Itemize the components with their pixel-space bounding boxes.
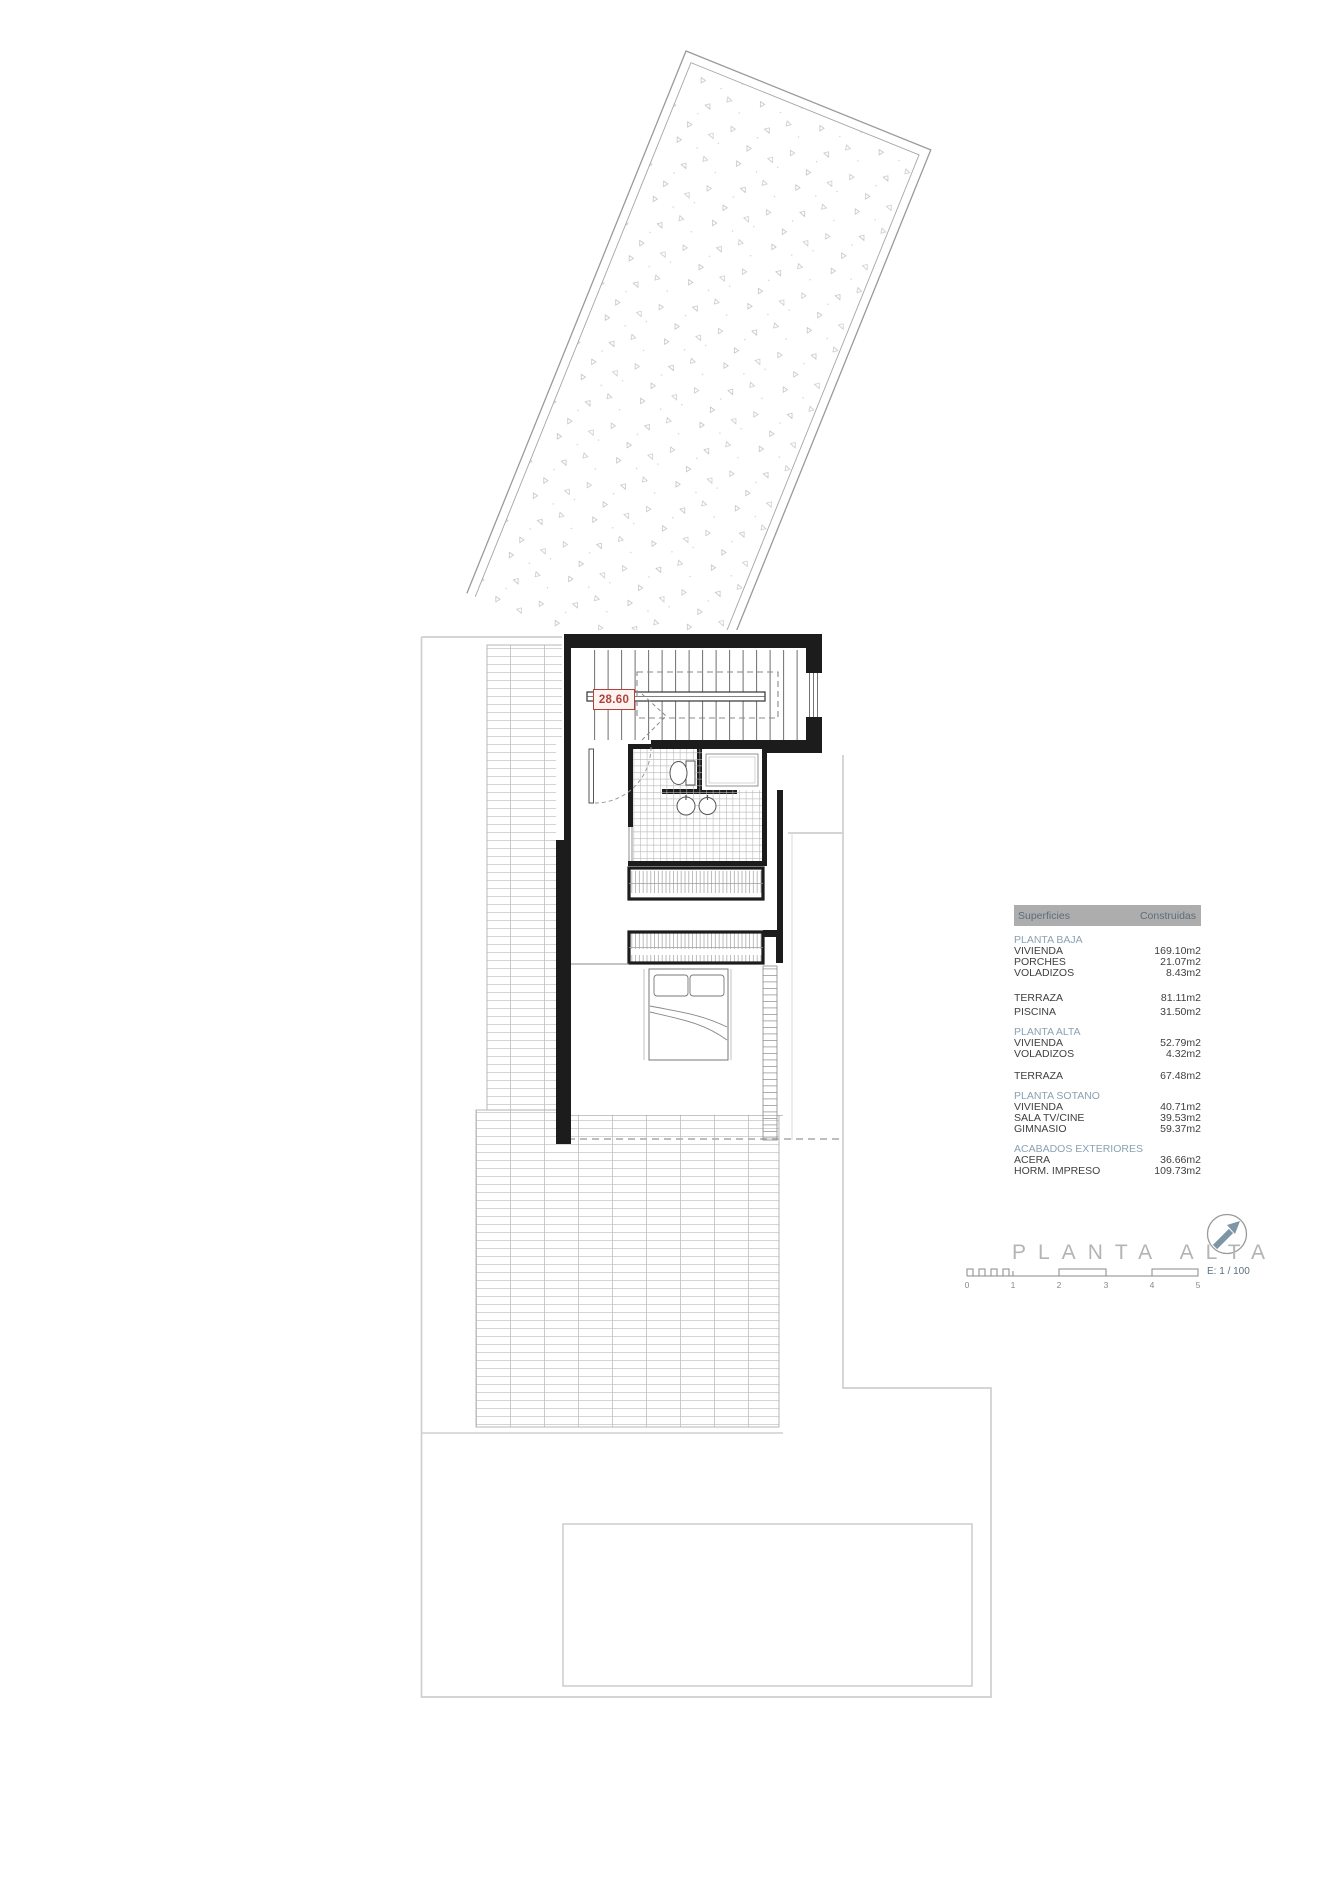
surface-value: 59.37m2 xyxy=(1160,1124,1201,1135)
surface-value: 81.11m2 xyxy=(1161,993,1201,1004)
surfaces-table: Superficies Construidas PLANTA BAJA VIVI… xyxy=(1014,905,1201,1177)
surface-row: TERRAZA81.11m2 xyxy=(1014,993,1201,1004)
surface-label: HORM. IMPRESO xyxy=(1014,1166,1100,1177)
scale-tick-label: 5 xyxy=(1193,1280,1203,1290)
surface-value: 67.48m2 xyxy=(1160,1071,1201,1082)
bathroom xyxy=(633,749,762,861)
scale-tick-label: 2 xyxy=(1054,1280,1064,1290)
sink xyxy=(699,798,716,815)
page-title: PLANTA ALTA xyxy=(1012,1241,1277,1265)
surfaces-col-header: Superficies xyxy=(1018,910,1070,922)
surface-label: VOLADIZOS xyxy=(1014,968,1074,979)
level-badge: 28.60 xyxy=(593,689,635,710)
scale-tick-label: 4 xyxy=(1147,1280,1157,1290)
pool-outline xyxy=(563,1524,972,1686)
surface-label: TERRAZA xyxy=(1014,1071,1063,1082)
floor-plan-sheet: 28.60 Superficies Construidas PLANTA BAJ… xyxy=(0,0,1336,1896)
built-col-header: Construidas xyxy=(1140,910,1196,922)
scale-tick-label: 0 xyxy=(962,1280,972,1290)
surface-row: PISCINA31.50m2 xyxy=(1014,1007,1201,1018)
surface-label: GIMNASIO xyxy=(1014,1124,1067,1135)
surface-row: VOLADIZOS8.43m2 xyxy=(1014,968,1201,979)
scale-ratio-label: E: 1 / 100 xyxy=(1207,1266,1250,1277)
surface-row: HORM. IMPRESO109.73m2 xyxy=(1014,1166,1201,1177)
surface-value: 31.50m2 xyxy=(1160,1007,1201,1018)
surfaces-table-header: Superficies Construidas xyxy=(1014,905,1201,926)
scale-tick-label: 1 xyxy=(1008,1280,1018,1290)
surface-value: 109.73m2 xyxy=(1154,1166,1201,1177)
scale-tick-label: 3 xyxy=(1101,1280,1111,1290)
surface-value: 8.43m2 xyxy=(1166,968,1201,979)
surface-row: VOLADIZOS4.32m2 xyxy=(1014,1049,1201,1060)
surface-row: TERRAZA67.48m2 xyxy=(1014,1071,1201,1082)
scale-bar xyxy=(967,1269,1198,1276)
surface-label: TERRAZA xyxy=(1014,993,1063,1004)
surface-label: VOLADIZOS xyxy=(1014,1049,1074,1060)
surface-value: 4.32m2 xyxy=(1166,1049,1201,1060)
surface-label: PISCINA xyxy=(1014,1007,1056,1018)
surface-row: GIMNASIO59.37m2 xyxy=(1014,1124,1201,1135)
railing xyxy=(763,966,777,1140)
